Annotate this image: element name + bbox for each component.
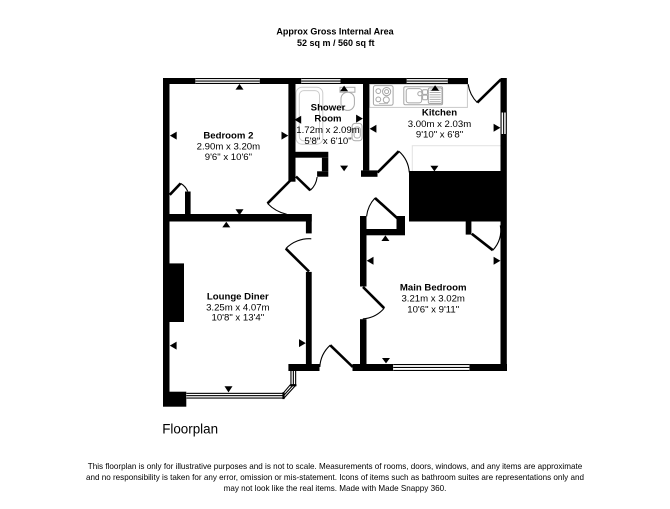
svg-text:1.72m x 2.09m: 1.72m x 2.09m	[296, 125, 359, 136]
svg-text:Approx Gross Internal Area: Approx Gross Internal Area	[276, 26, 394, 36]
svg-text:Lounge Diner: Lounge Diner	[207, 292, 269, 303]
svg-text:2.90m x 3.20m: 2.90m x 3.20m	[197, 141, 260, 152]
svg-text:3.21m x 3.02m: 3.21m x 3.02m	[401, 294, 464, 305]
svg-text:Kitchen: Kitchen	[422, 108, 457, 119]
svg-text:10'8" x 13'4": 10'8" x 13'4"	[211, 313, 264, 324]
svg-text:Floorplan: Floorplan	[162, 422, 218, 437]
svg-text:3.25m x 4.07m: 3.25m x 4.07m	[206, 302, 269, 313]
svg-text:52 sq m / 560 sq ft: 52 sq m / 560 sq ft	[297, 38, 375, 48]
svg-text:This floorplan is only for ill: This floorplan is only for illustrative …	[88, 462, 583, 471]
svg-text:may not look like the real ite: may not look like the real items. Made w…	[224, 484, 447, 493]
svg-text:5'8" x 6'10": 5'8" x 6'10"	[304, 136, 351, 147]
svg-text:10'6" x 9'11": 10'6" x 9'11"	[407, 305, 459, 316]
svg-text:Bedroom 2: Bedroom 2	[203, 131, 253, 142]
svg-text:Shower: Shower	[311, 103, 346, 114]
svg-text:Room: Room	[314, 113, 341, 124]
svg-text:Main Bedroom: Main Bedroom	[400, 282, 467, 293]
svg-text:and no responsibility is taken: and no responsibility is taken for any e…	[86, 473, 584, 482]
svg-text:3.00m x 2.03m: 3.00m x 2.03m	[408, 119, 471, 130]
svg-text:9'10" x 6'8": 9'10" x 6'8"	[416, 130, 463, 141]
svg-text:9'6" x 10'6": 9'6" x 10'6"	[205, 152, 252, 163]
